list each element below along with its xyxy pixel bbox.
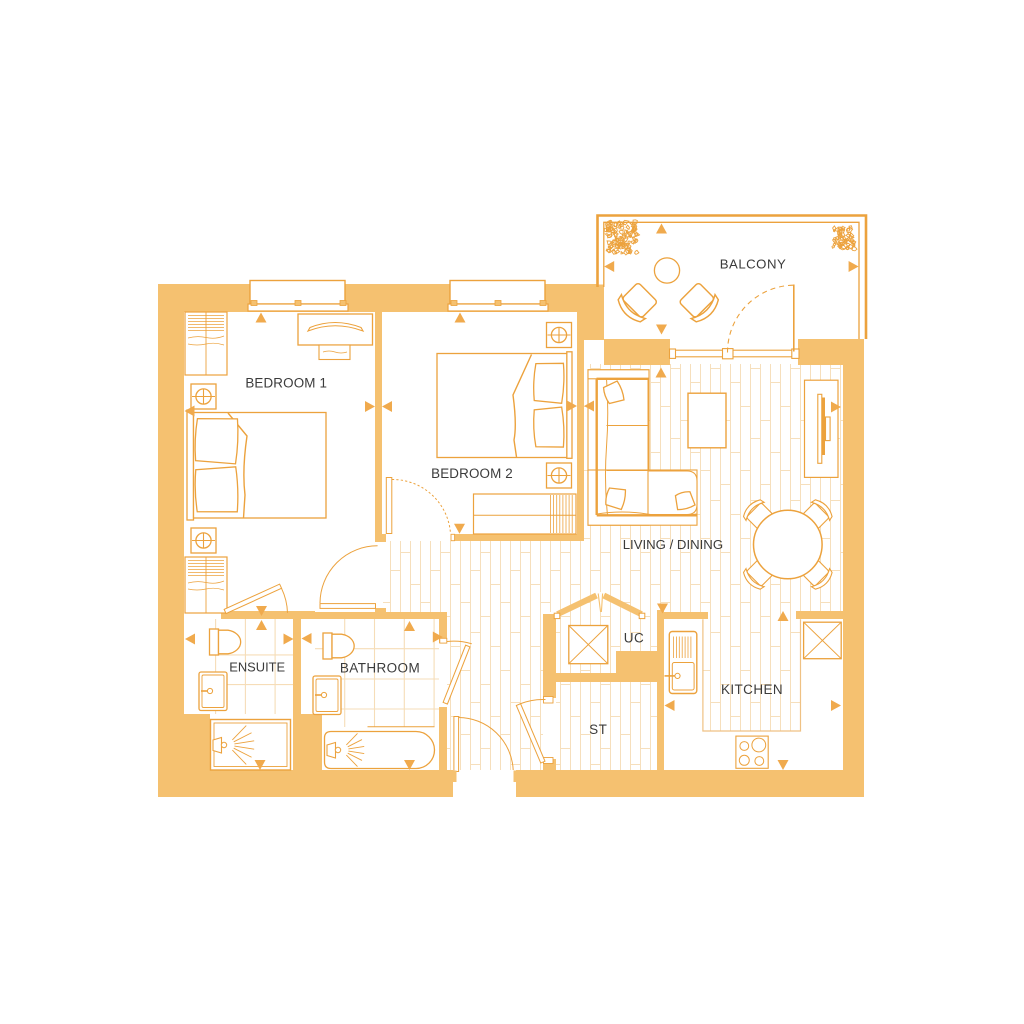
svg-text:LIVING / DINING: LIVING / DINING xyxy=(623,537,723,552)
svg-text:ENSUITE: ENSUITE xyxy=(229,659,285,674)
svg-text:ST: ST xyxy=(589,722,607,737)
svg-text:BALCONY: BALCONY xyxy=(720,257,787,272)
svg-text:UC: UC xyxy=(624,631,645,646)
svg-text:BEDROOM 1: BEDROOM 1 xyxy=(245,375,327,390)
svg-text:KITCHEN: KITCHEN xyxy=(721,682,783,697)
svg-text:BATHROOM: BATHROOM xyxy=(340,661,420,676)
svg-text:BEDROOM 2: BEDROOM 2 xyxy=(431,466,513,481)
